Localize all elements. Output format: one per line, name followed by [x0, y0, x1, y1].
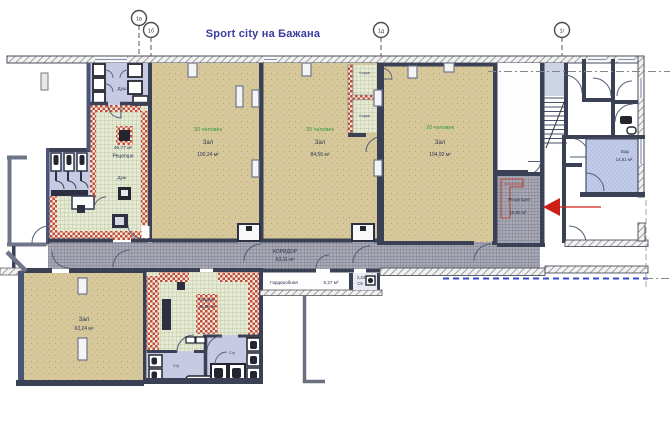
svg-text:Бар: Бар [621, 149, 630, 154]
svg-text:Зал: Зал [203, 140, 214, 146]
svg-text:20 человек: 20 человек [426, 125, 455, 131]
svg-text:С6: С6 [357, 281, 363, 286]
svg-text:46,77 м²: 46,77 м² [114, 145, 133, 151]
svg-text:63,24 м²: 63,24 м² [74, 326, 93, 332]
svg-text:Зал: Зал [79, 317, 90, 323]
svg-text:С/у: С/у [229, 350, 235, 355]
svg-text:30 человек: 30 человек [194, 127, 223, 133]
svg-text:1г: 1г [559, 29, 564, 35]
svg-text:84,56 м²: 84,56 м² [310, 152, 329, 158]
svg-text:6,27 м²: 6,27 м² [324, 280, 339, 285]
svg-text:2,43: 2,43 [357, 275, 366, 280]
svg-text:Рецепция: Рецепция [508, 197, 530, 203]
svg-text:С/у: С/у [173, 363, 179, 368]
svg-text:1д: 1д [378, 29, 385, 35]
svg-text:53,11 м²: 53,11 м² [276, 257, 295, 263]
svg-text:Душ: Душ [117, 86, 126, 91]
svg-text:1в: 1в [136, 17, 142, 23]
svg-text:46,98 м²: 46,98 м² [199, 304, 216, 309]
svg-text:Гардеробная: Гардеробная [270, 280, 298, 285]
svg-text:1б: 1б [148, 29, 154, 35]
svg-text:КОРИДОР: КОРИДОР [273, 249, 298, 255]
svg-text:Кладов.: Кладов. [359, 114, 371, 118]
svg-text:Душ: Душ [117, 175, 126, 180]
svg-text:14,51 м²: 14,51 м² [616, 157, 633, 162]
svg-text:30 человек: 30 человек [306, 127, 335, 133]
svg-text:15,86 м²: 15,86 м² [510, 210, 527, 215]
svg-text:100,24 м²: 100,24 м² [197, 152, 219, 158]
svg-text:Раздев.: Раздев. [198, 297, 215, 303]
svg-text:Кладов.: Кладов. [359, 71, 371, 75]
svg-text:Зал: Зал [315, 140, 326, 146]
svg-text:Зал: Зал [435, 140, 446, 146]
svg-text:Sport city на Бажана: Sport city на Бажана [206, 28, 321, 40]
svg-text:104,92 м²: 104,92 м² [429, 152, 451, 158]
svg-text:Рецепшн: Рецепшн [113, 154, 134, 160]
